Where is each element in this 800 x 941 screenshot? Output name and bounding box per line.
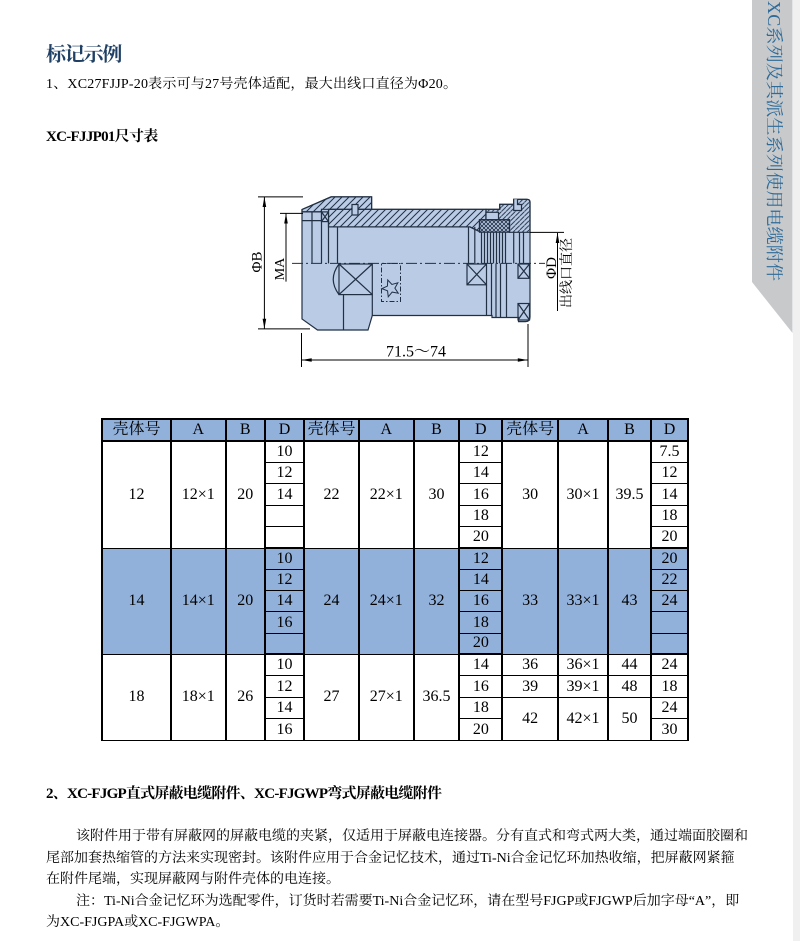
svg-text:71.5～74: 71.5～74	[386, 344, 446, 361]
svg-text:MA: MA	[273, 257, 288, 280]
svg-text:ΦD: ΦD	[544, 257, 560, 279]
svg-text:ΦB: ΦB	[250, 252, 266, 273]
svg-text:出线口直径: 出线口直径	[559, 238, 575, 308]
